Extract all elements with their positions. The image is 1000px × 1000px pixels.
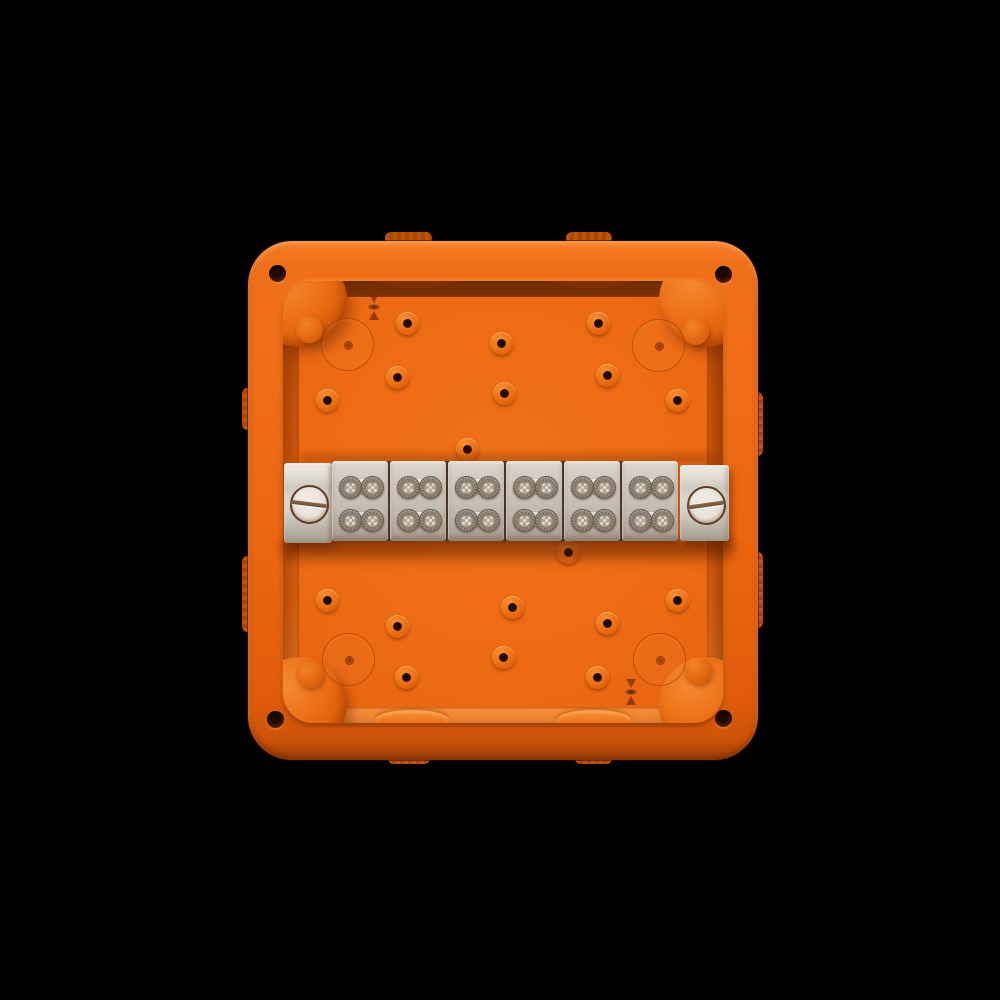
boss-hole [673,396,682,405]
boss-hole [323,596,332,605]
clamp-screw [419,509,442,532]
screw-slot [688,501,724,509]
boss-hole [403,319,412,328]
boss-hole [402,673,411,682]
rail-end-bracket-right [680,465,729,541]
mounting-boss [395,666,418,689]
clamp-screw [593,476,616,499]
clamp-screw-face [576,481,589,494]
mold-mark-symbol [367,294,381,320]
clamp-screw-face [424,481,437,494]
boss-hole [603,619,612,628]
knockout-circle [633,633,686,686]
knockout-center-pilot [344,341,353,350]
boss-hole [603,371,612,380]
mounting-boss [596,364,619,387]
cable-entry-dome-bottom [375,710,449,723]
boss-hole [593,673,602,682]
mold-mark-center [625,689,637,695]
rail-end-bracket-left [284,463,332,543]
clamp-screw [477,476,500,499]
knockout-center-pilot [345,656,354,665]
mounting-boss [490,332,513,355]
clamp-screw [455,476,478,499]
mounting-boss [666,389,689,412]
cable-entry-dome-top [373,281,457,288]
terminal-block [332,461,388,541]
mounting-boss [586,666,609,689]
clamp-screw-face [402,481,415,494]
lid-screw-hole [715,266,732,283]
clamp-screw [629,509,652,532]
boss-hole [497,339,506,348]
cable-entry-dome-top [550,281,634,288]
mounting-boss [587,312,610,335]
mounting-boss [396,312,419,335]
clamp-screw [397,476,420,499]
clamp-screw [361,509,384,532]
clamp-screw-face [540,514,553,527]
mold-mark-symbol [624,679,638,705]
mounting-boss [386,366,409,389]
knockout-circle [322,633,375,686]
clamp-screw-face [598,514,611,527]
clamp-screw-face [366,481,379,494]
knockout-circle [632,319,685,372]
clamp-screw-face [518,514,531,527]
boss-hole [323,396,332,405]
mold-mark-center [368,304,380,310]
clamp-screw [651,509,674,532]
terminal-strip-shadow [282,538,734,558]
clamp-screw-face [576,514,589,527]
clamp-screw [361,476,384,499]
boss-hole [673,596,682,605]
clamp-screw [513,476,536,499]
mounting-boss [386,615,409,638]
terminal-block [622,461,678,541]
clamp-screw-face [540,481,553,494]
clamp-screw-face [424,514,437,527]
terminal-block [564,461,620,541]
clamp-screw-face [634,514,647,527]
clamp-screw [419,476,442,499]
corner-tower-bump [296,661,323,688]
boss-hole [499,653,508,662]
boss-hole [500,389,509,398]
corner-tower-bump [684,657,711,684]
mounting-boss [596,612,619,635]
clamp-screw-face [634,481,647,494]
clamp-screw [571,476,594,499]
boss-hole [594,319,603,328]
clamp-screw-face [656,514,669,527]
mounting-boss [492,646,515,669]
product-photo [0,0,1000,1000]
boss-hole [393,373,402,382]
terminal-block [448,461,504,541]
clamp-screw-face [402,514,415,527]
mounting-boss [493,382,516,405]
terminal-block [390,461,446,541]
clamp-screw-face [482,481,495,494]
knockout-center-pilot [656,656,665,665]
clamp-screw-face [344,481,357,494]
clamp-screw-face [656,481,669,494]
boss-hole [463,445,472,454]
end-screw-left [290,485,329,524]
clamp-screw [513,509,536,532]
lid-screw-hole [267,711,284,728]
clamp-screw [629,476,652,499]
terminal-block [506,461,562,541]
lid-screw-hole [269,265,286,282]
clamp-screw [651,476,674,499]
mounting-boss [316,589,339,612]
corner-tower-bump [296,316,323,343]
mounting-boss [501,596,524,619]
clamp-screw-face [460,481,473,494]
clamp-screw-face [366,514,379,527]
clamp-screw-face [482,514,495,527]
screw-slot [291,500,327,508]
end-screw-right [687,486,726,525]
clamp-screw-face [598,481,611,494]
clamp-screw [455,509,478,532]
knockout-center-pilot [655,342,664,351]
clamp-screw [477,509,500,532]
clamp-screw [339,509,362,532]
clamp-screw-face [518,481,531,494]
boss-hole [508,603,517,612]
boss-hole [393,622,402,631]
mounting-boss [666,589,689,612]
clamp-screw [397,509,420,532]
clamp-screw-face [460,514,473,527]
clamp-screw-face [344,514,357,527]
knockout-circle [321,318,374,371]
clamp-screw [593,509,616,532]
terminal-block-strip [332,461,678,541]
clamp-screw [571,509,594,532]
corner-tower-bump [682,318,709,345]
clamp-screw [535,476,558,499]
clamp-screw [535,509,558,532]
cable-entry-dome-bottom [557,710,631,723]
mounting-boss [316,389,339,412]
clamp-screw [339,476,362,499]
